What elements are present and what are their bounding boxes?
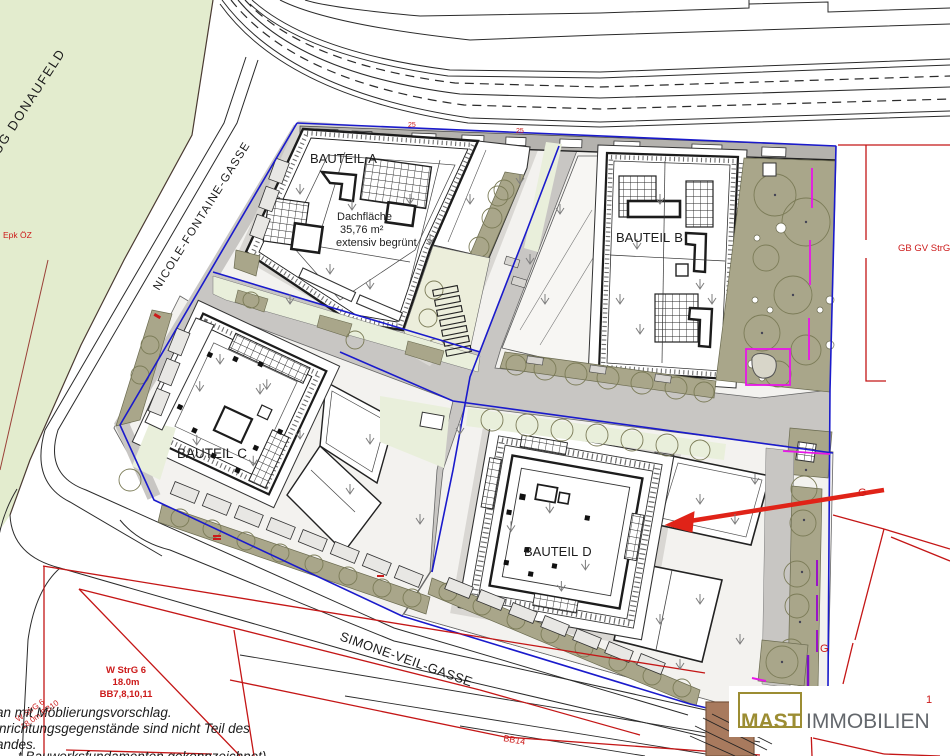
- svg-text:MAST: MAST: [741, 710, 801, 733]
- svg-text:G: G: [858, 487, 867, 499]
- svg-text:1: 1: [926, 694, 932, 706]
- svg-text:BAUTEILC: BAUTEILC: [177, 446, 247, 461]
- svg-text:25: 25: [516, 128, 524, 135]
- svg-text:G: G: [820, 643, 829, 655]
- svg-text:extensiv begrünt: extensiv begrünt: [336, 237, 417, 249]
- svg-text:BAUTEILD: BAUTEILD: [524, 544, 592, 559]
- svg-text:GB GV StrG: GB GV StrG: [898, 243, 950, 254]
- svg-text:25: 25: [408, 122, 416, 129]
- svg-text:an mit Möblierungsvorschlag.: an mit Möblierungsvorschlag.: [0, 705, 172, 720]
- svg-text:35,76 m²: 35,76 m²: [340, 224, 384, 236]
- svg-text:Epk ÖZ: Epk ÖZ: [3, 230, 32, 240]
- svg-text:W StrG 6: W StrG 6: [106, 665, 146, 676]
- svg-text:t Bauwerksfundamenten gekennze: t Bauwerksfundamenten gekennzeichnet): [18, 749, 266, 756]
- svg-text:18.0m: 18.0m: [113, 677, 140, 688]
- svg-text:Dachfläche: Dachfläche: [337, 211, 392, 223]
- svg-text:inrichtungsgegenstände sind ni: inrichtungsgegenstände sind nicht Teil d…: [0, 721, 250, 736]
- svg-text:BB7,8,10,11: BB7,8,10,11: [100, 689, 154, 700]
- svg-text:IMMOBILIEN: IMMOBILIEN: [806, 710, 930, 733]
